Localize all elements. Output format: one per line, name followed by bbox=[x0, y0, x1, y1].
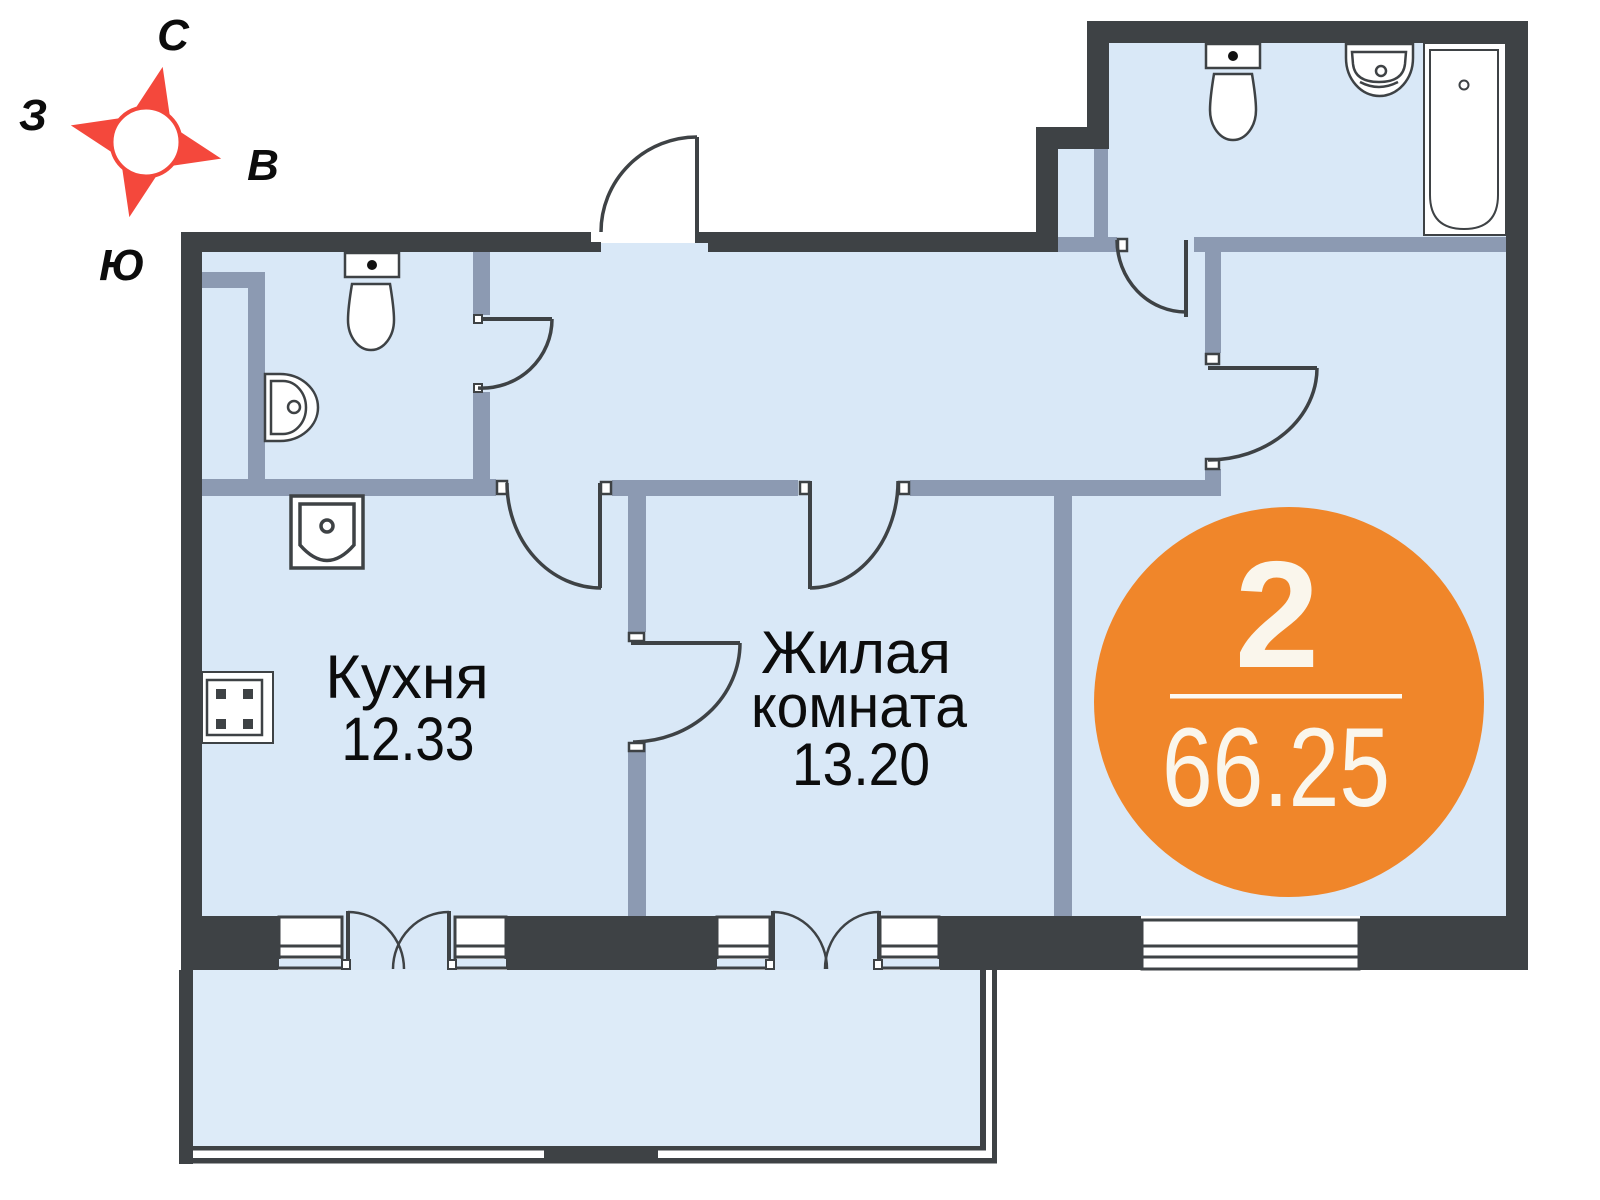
svg-text:2: 2 bbox=[1235, 530, 1320, 700]
svg-text:66.25: 66.25 bbox=[1162, 705, 1390, 830]
svg-text:12.33: 12.33 bbox=[342, 705, 475, 773]
svg-text:13.20: 13.20 bbox=[792, 731, 930, 798]
svg-text:С: С bbox=[157, 11, 190, 60]
svg-text:комната: комната bbox=[751, 673, 968, 740]
svg-text:З: З bbox=[19, 91, 47, 140]
svg-text:Ю: Ю bbox=[99, 241, 145, 290]
svg-text:В: В bbox=[247, 141, 279, 190]
svg-text:Кухня: Кухня bbox=[325, 643, 488, 711]
